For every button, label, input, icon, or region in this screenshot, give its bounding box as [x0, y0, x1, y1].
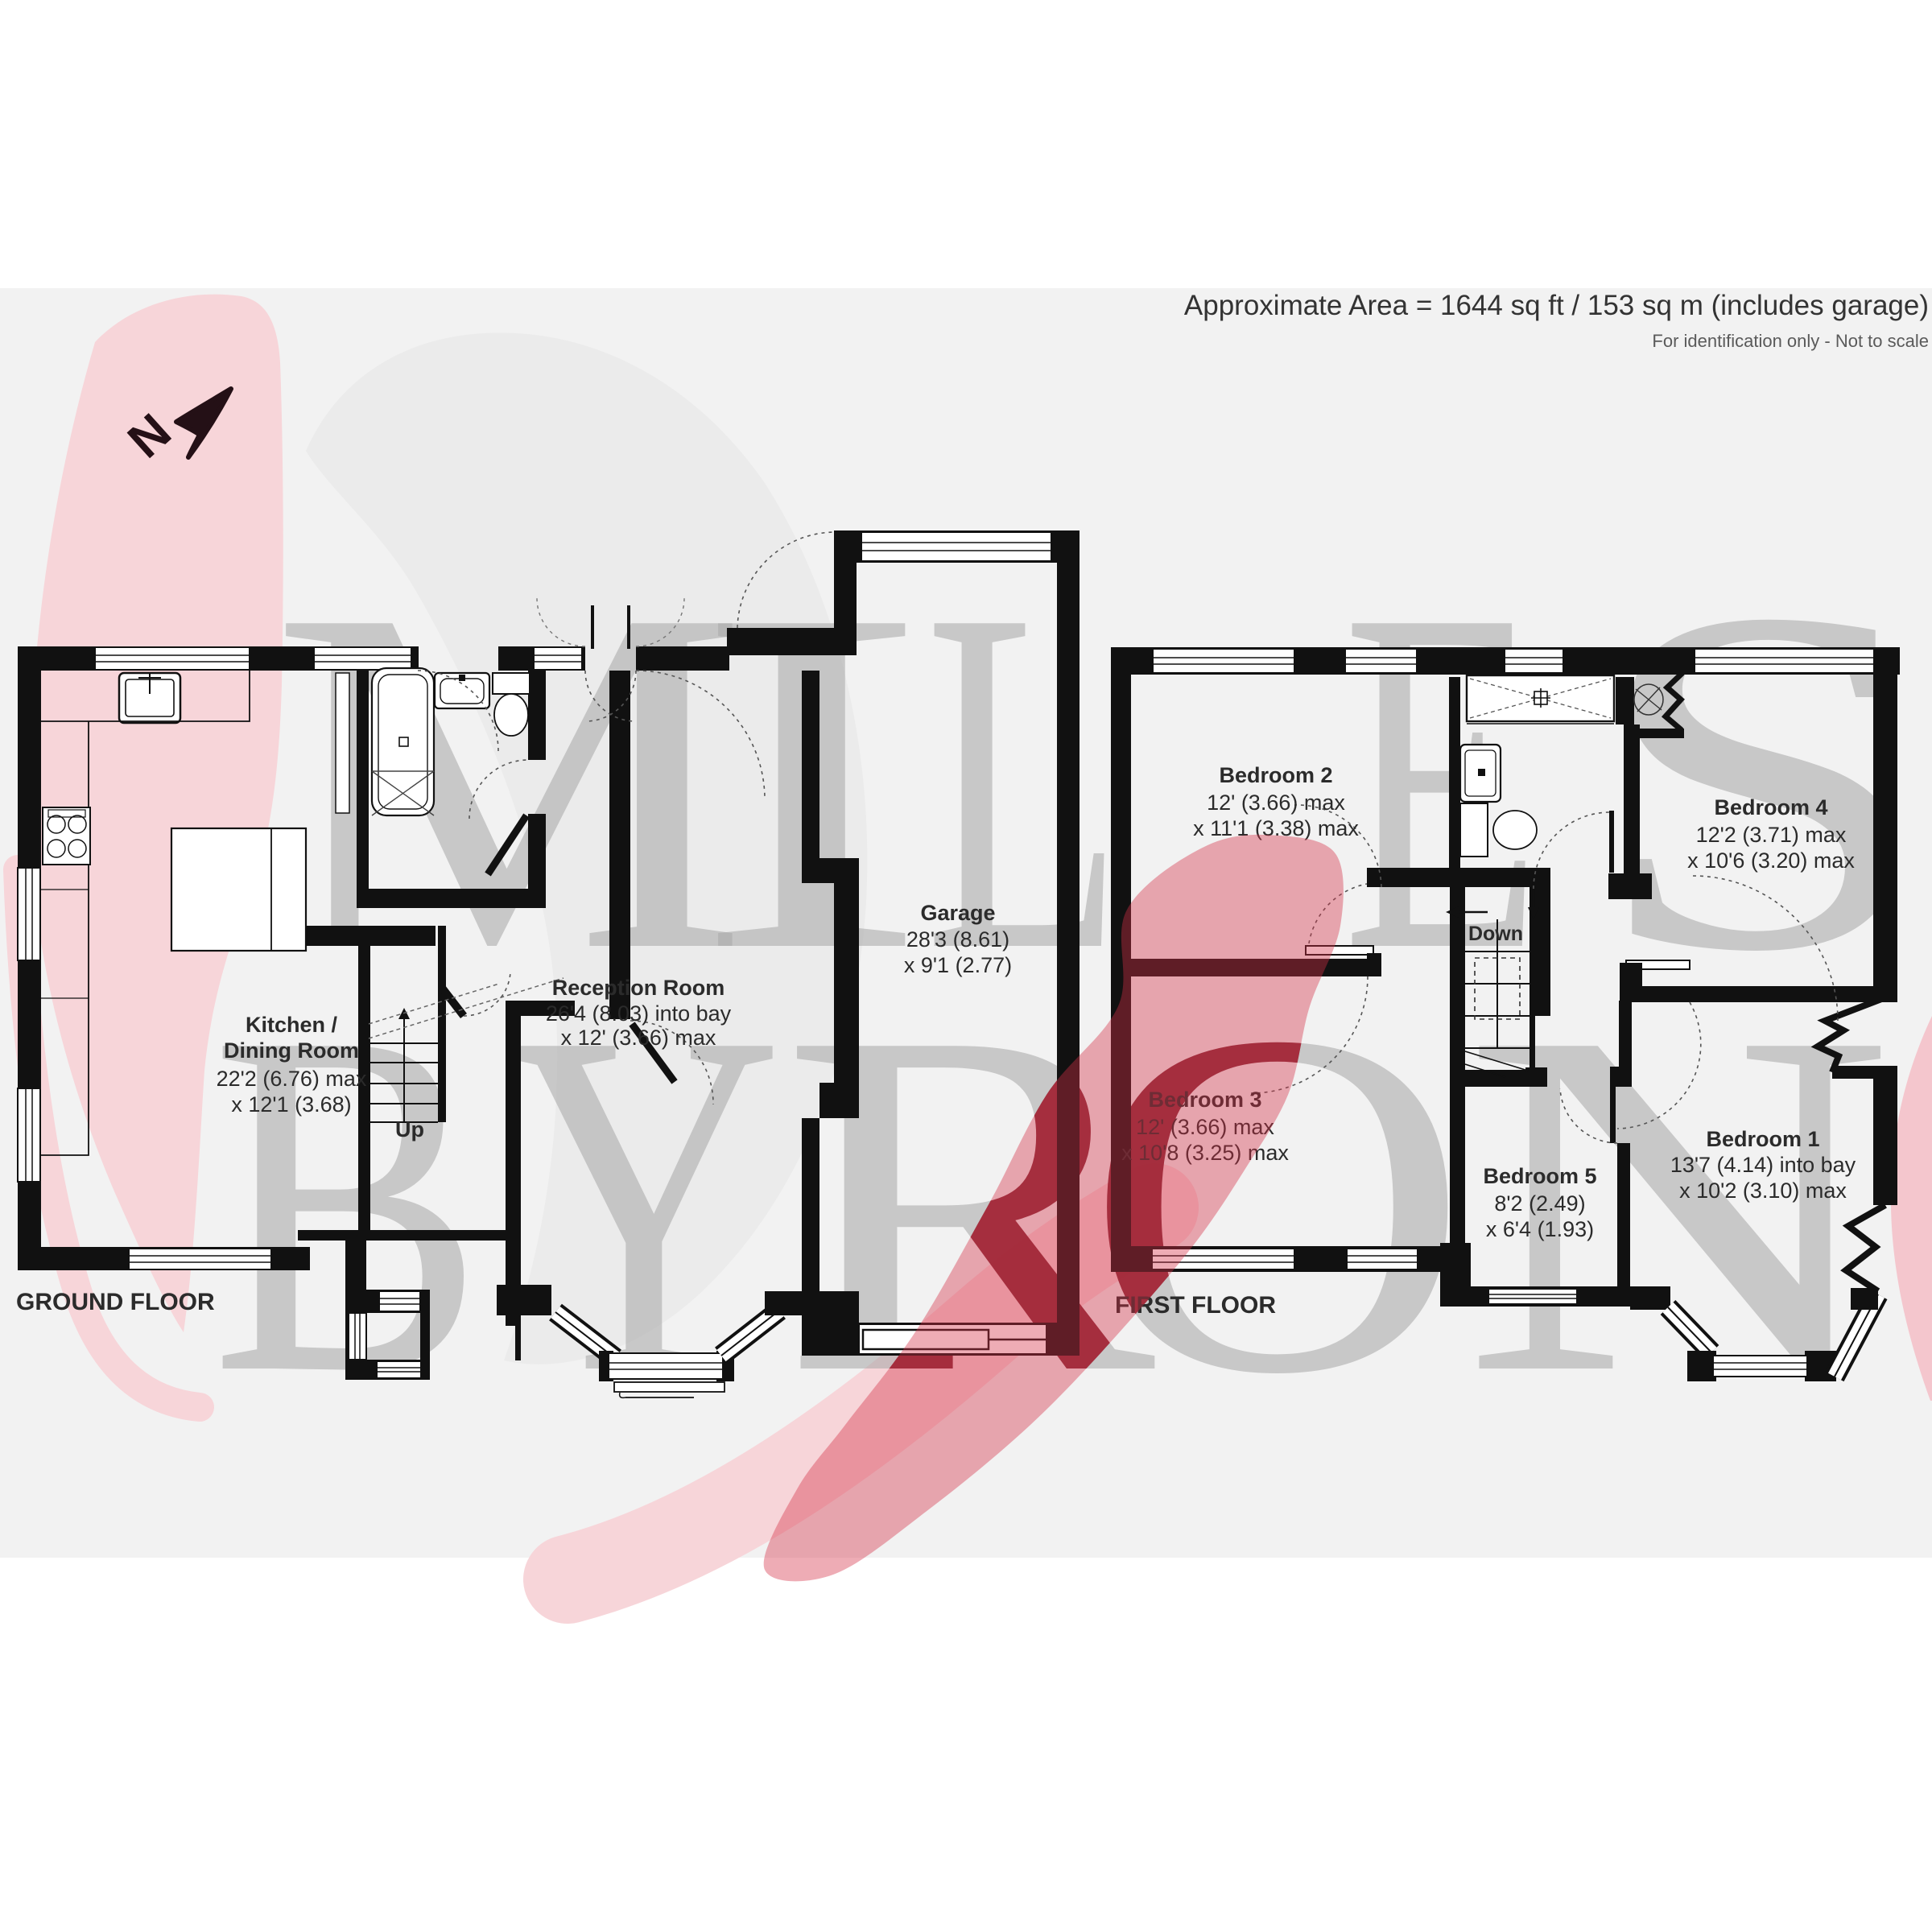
svg-text:x 6'4 (1.93): x 6'4 (1.93)	[1486, 1217, 1594, 1241]
svg-text:GROUND FLOOR: GROUND FLOOR	[16, 1289, 215, 1315]
svg-text:x 10'2 (3.10) max: x 10'2 (3.10) max	[1679, 1179, 1847, 1203]
svg-text:12'2 (3.71) max: 12'2 (3.71) max	[1696, 823, 1847, 847]
svg-text:For identification only - Not: For identification only - Not to scale	[1652, 331, 1929, 351]
svg-text:Reception Room: Reception Room	[552, 976, 725, 1000]
svg-text:Kitchen /: Kitchen /	[246, 1013, 338, 1037]
svg-text:Bedroom 5: Bedroom 5	[1483, 1164, 1596, 1188]
svg-text:13'7 (4.14) into bay: 13'7 (4.14) into bay	[1670, 1153, 1856, 1177]
svg-text:x 10'6 (3.20) max: x 10'6 (3.20) max	[1687, 848, 1855, 873]
svg-text:Garage: Garage	[920, 901, 995, 925]
svg-text:Up: Up	[395, 1117, 424, 1141]
svg-text:Bedroom 1: Bedroom 1	[1706, 1127, 1819, 1151]
svg-text:Bedroom 2: Bedroom 2	[1219, 763, 1332, 787]
svg-text:22'2 (6.76) max: 22'2 (6.76) max	[217, 1067, 367, 1091]
svg-text:x 9'1 (2.77): x 9'1 (2.77)	[904, 953, 1012, 977]
svg-text:x 12' (3.66) max: x 12' (3.66) max	[561, 1026, 716, 1050]
svg-text:12' (3.66) max: 12' (3.66) max	[1207, 791, 1345, 815]
svg-text:Dining Room: Dining Room	[224, 1038, 359, 1063]
svg-text:x 12'1 (3.68): x 12'1 (3.68)	[231, 1092, 351, 1117]
svg-text:Bedroom 4: Bedroom 4	[1714, 795, 1827, 819]
svg-text:28'3 (8.61): 28'3 (8.61)	[906, 927, 1009, 952]
svg-text:Approximate Area = 1644 sq ft: Approximate Area = 1644 sq ft / 153 sq m…	[1184, 290, 1929, 321]
svg-text:26'4 (8.03) into bay: 26'4 (8.03) into bay	[546, 1001, 732, 1026]
svg-text:8'2 (2.49): 8'2 (2.49)	[1494, 1191, 1585, 1216]
svg-text:Down: Down	[1468, 923, 1523, 945]
